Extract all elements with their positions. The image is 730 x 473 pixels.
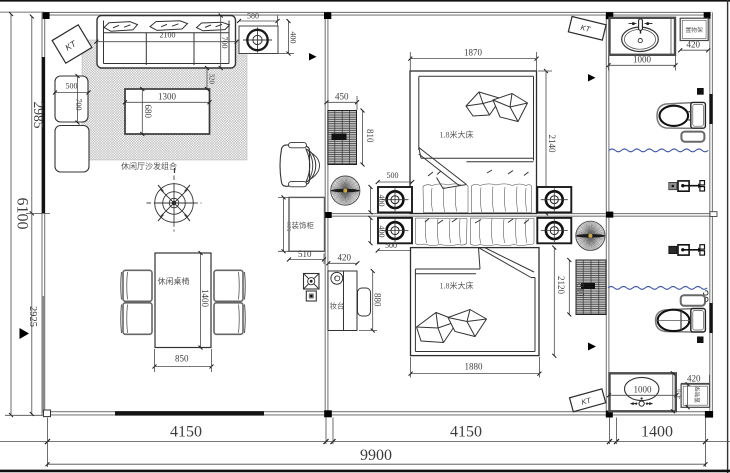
svg-text:580: 580 [247,12,259,21]
svg-text:2140: 2140 [547,135,557,154]
svg-text:4150: 4150 [170,424,202,441]
svg-text:500: 500 [66,82,78,91]
svg-text:置物架: 置物架 [694,385,702,403]
svg-text:1000: 1000 [633,55,652,65]
svg-text:妆台: 妆台 [330,301,345,311]
svg-text:1.8米大床: 1.8米大床 [440,281,474,291]
svg-text:680: 680 [143,105,153,119]
svg-text:520: 520 [286,222,293,232]
svg-text:400: 400 [377,226,386,238]
svg-text:1880: 1880 [465,362,484,372]
svg-text:9900: 9900 [360,447,392,464]
svg-text:420: 420 [687,373,701,383]
svg-text:1870: 1870 [464,48,483,58]
svg-text:810: 810 [575,283,585,297]
svg-text:2100: 2100 [160,30,176,39]
svg-text:420: 420 [338,253,352,263]
svg-text:2120: 2120 [556,276,566,295]
svg-text:700: 700 [74,99,83,111]
svg-text:320: 320 [208,74,216,85]
svg-text:2985: 2985 [31,102,46,129]
svg-text:500: 500 [385,241,397,250]
svg-text:510: 510 [298,249,312,259]
svg-text:装饰柜: 装饰柜 [292,220,315,230]
svg-text:休闲厅沙发组合: 休闲厅沙发组合 [121,161,177,171]
svg-text:400: 400 [288,32,297,44]
svg-text:置物架: 置物架 [686,26,704,34]
svg-text:400: 400 [377,195,386,207]
svg-text:850: 850 [175,354,189,364]
svg-text:1300: 1300 [158,92,177,102]
svg-text:810: 810 [365,129,375,143]
svg-text:880: 880 [373,293,383,307]
svg-text:500: 500 [387,171,399,180]
svg-text:420: 420 [687,40,701,50]
svg-text:700: 700 [220,37,229,49]
svg-text:1000: 1000 [634,384,653,394]
svg-text:休闲桌椅: 休闲桌椅 [158,276,190,286]
svg-text:1.8米大床: 1.8米大床 [440,130,474,140]
svg-text:4150: 4150 [450,424,482,441]
svg-text:2925: 2925 [27,306,38,327]
svg-text:450: 450 [335,92,349,102]
svg-text:1400: 1400 [200,289,210,308]
svg-text:1400: 1400 [641,424,673,441]
